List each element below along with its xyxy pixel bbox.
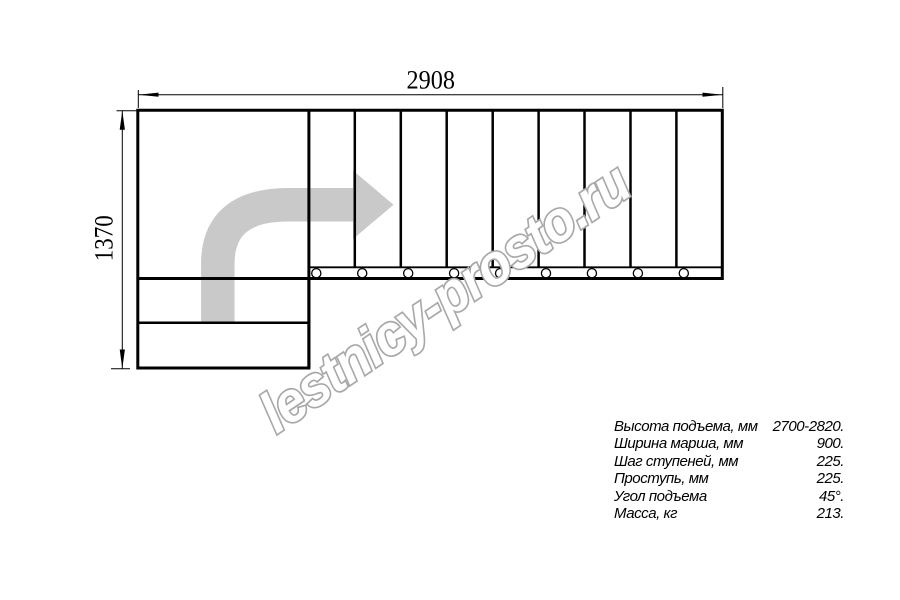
svg-text:1370: 1370 xyxy=(89,215,119,261)
svg-text:2908: 2908 xyxy=(406,64,455,94)
